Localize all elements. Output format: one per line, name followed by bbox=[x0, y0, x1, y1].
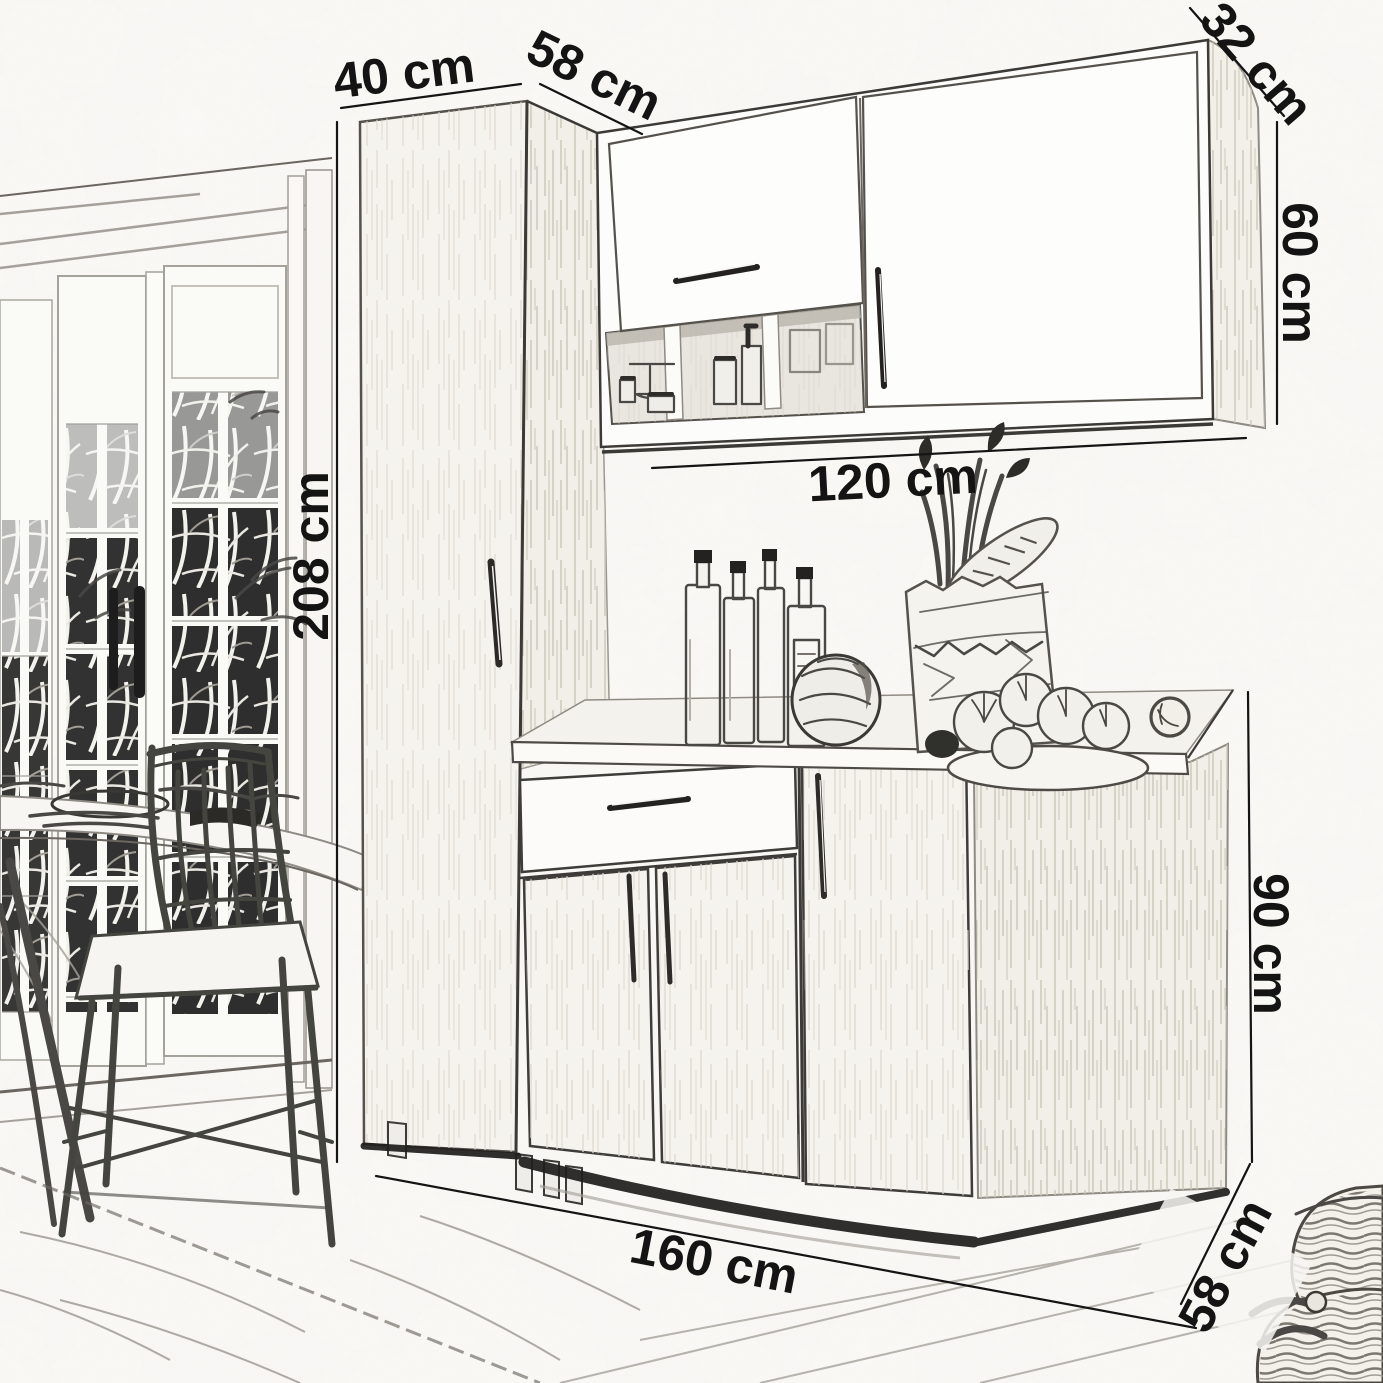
door-handle-left-icon bbox=[109, 588, 118, 690]
bread-loaf bbox=[792, 655, 880, 745]
door-handle-right-icon bbox=[134, 586, 145, 698]
dimension-wall-cabinet-width: 120 cm bbox=[807, 448, 979, 513]
base-cabinet-door-wide bbox=[799, 748, 972, 1196]
sketch-scene: 40 cm 58 cm 32 cm 60 cm 208 cm 120 cm 90… bbox=[0, 0, 1383, 1383]
fruit bbox=[1151, 698, 1189, 736]
dimension-base-cabinet-height: 90 cm bbox=[1243, 873, 1299, 1015]
dimension-tall-cabinet-height: 208 cm bbox=[283, 471, 339, 641]
tomato bbox=[925, 730, 959, 758]
dimension-wall-cabinet-height: 60 cm bbox=[1272, 202, 1328, 344]
dimension-diagram-canvas: 40 cm 58 cm 32 cm 60 cm 208 cm 120 cm 90… bbox=[0, 0, 1383, 1383]
tall-cabinet-foot bbox=[388, 1122, 406, 1158]
base-cabinet-door-left bbox=[524, 869, 654, 1160]
base-cabinet-door-middle bbox=[656, 856, 799, 1178]
wall-cabinet-right-door bbox=[860, 52, 1202, 408]
